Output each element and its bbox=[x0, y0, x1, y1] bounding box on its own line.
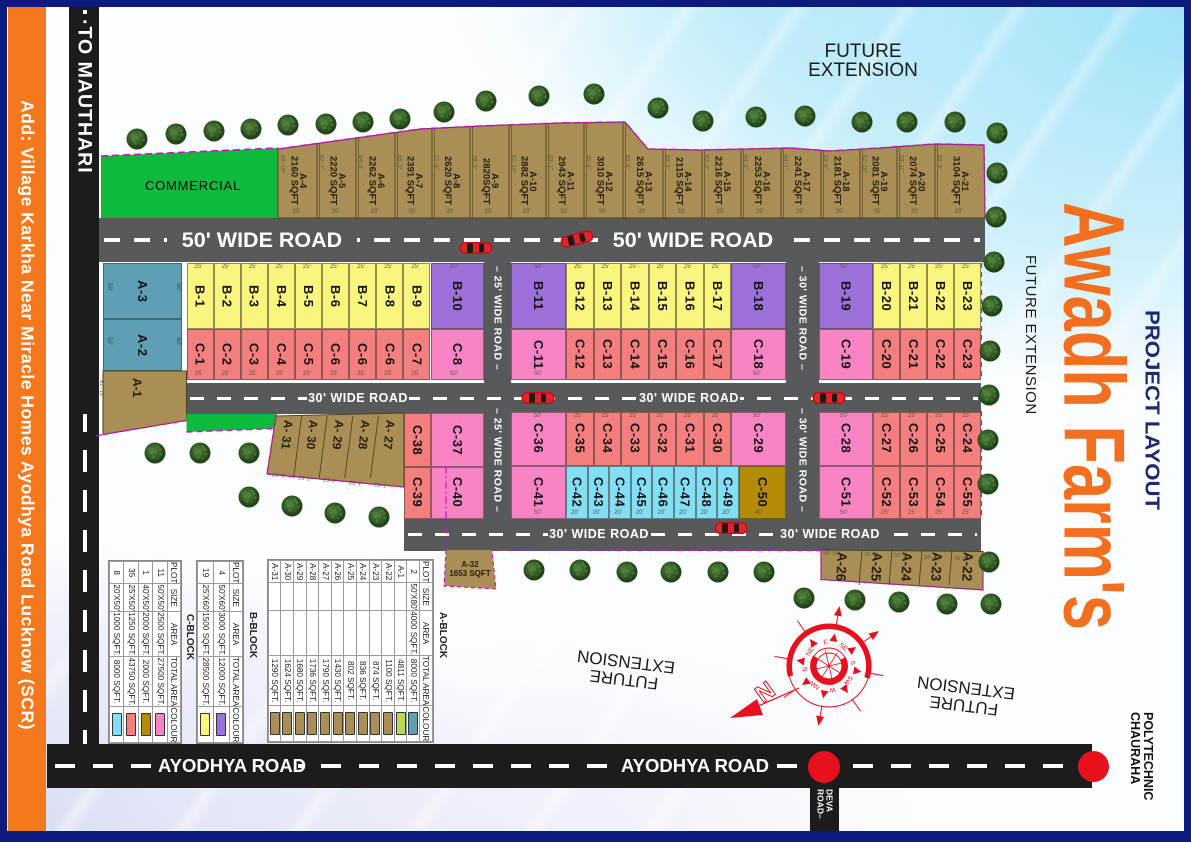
svg-text:E: E bbox=[823, 639, 829, 647]
svg-text:N: N bbox=[802, 666, 810, 672]
svg-text:S: S bbox=[849, 660, 857, 666]
svg-text:W: W bbox=[828, 685, 836, 693]
